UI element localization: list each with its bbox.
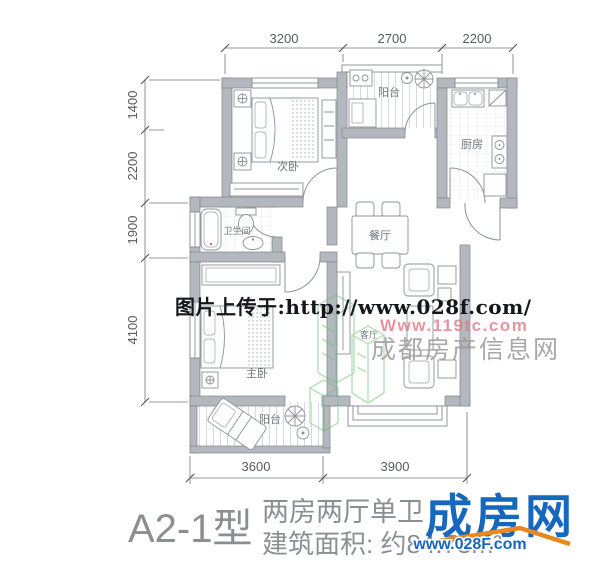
floor-plan-page: 3200 2700 2200 1400 2200 1900 4100 3600 … (0, 0, 600, 568)
bathroom-sink (243, 237, 263, 250)
chengfang-logo-url: www.028F.com (412, 536, 526, 553)
closet (202, 265, 280, 285)
plant (402, 73, 413, 84)
door-master-bedroom (285, 257, 320, 292)
layout-description: 两房两厅单卫 (262, 497, 424, 527)
wardrobe (322, 100, 336, 158)
stove (492, 136, 507, 168)
fan-plant (415, 70, 433, 88)
dim-left-1900: 1900 (125, 216, 140, 245)
plant (297, 427, 309, 439)
unit-type-label: A2-1型 (128, 507, 253, 551)
floor-plan-drawing: 3200 2700 2200 1400 2200 1900 4100 3600 … (0, 0, 600, 568)
window-kitchen (455, 78, 498, 88)
bay-window-living (348, 406, 447, 426)
dim-left-2200: 2200 (125, 152, 140, 181)
dresser (230, 183, 303, 196)
dim-bottom-3900: 3900 (381, 459, 410, 474)
nightstand (234, 153, 251, 170)
label-kitchen: 厨房 (461, 138, 483, 151)
balcony-cabinet (349, 99, 376, 127)
label-balcony-bottom: 阳台 (259, 412, 281, 426)
watermark-upload-text: 图片上传于:http://www.028f.com/ (175, 295, 532, 319)
label-bathroom: 卫生间 (223, 225, 250, 236)
dim-top-2700: 2700 (378, 31, 407, 46)
door-entry (465, 203, 500, 240)
washer (350, 70, 372, 86)
label-master-bedroom: 主卧 (246, 367, 268, 380)
dining-chair (356, 253, 374, 268)
nightstand (234, 90, 251, 107)
furniture-secondary-bedroom (230, 90, 336, 196)
footer: A2-1型 两房两厅单卫 建筑面积: 约84.73m² 成房网 www.028F… (128, 490, 575, 559)
label-balcony-top: 阳台 (378, 85, 400, 99)
fan-plant (285, 406, 305, 426)
dim-top-3200: 3200 (270, 31, 299, 46)
label-dining-room: 餐厅 (369, 228, 391, 242)
nightstand (202, 372, 218, 388)
door-secondary-bedroom (303, 168, 337, 202)
armchair (404, 264, 434, 296)
corner-counter (489, 90, 506, 106)
window-secondary-bedroom (252, 78, 318, 88)
dim-bottom-3600: 3600 (242, 459, 271, 474)
bathtub (201, 209, 221, 250)
dining-chair (382, 253, 400, 268)
dim-top-2200: 2200 (463, 31, 492, 46)
kitchen-counter (484, 174, 506, 196)
kitchen-sink (452, 90, 484, 107)
dim-left-4100: 4100 (125, 316, 140, 345)
dining-chair (382, 202, 400, 217)
window-bathroom (190, 212, 200, 247)
chengfang-logo: 成房网 www.028F.com (412, 490, 575, 553)
side-table (438, 266, 456, 284)
bed-secondary (252, 98, 318, 162)
watermark-site-name: 成都房产信息网 (371, 336, 560, 364)
dim-left-1400: 1400 (125, 91, 140, 120)
furniture-master-bedroom (201, 265, 280, 388)
label-secondary-bedroom: 次卧 (277, 159, 299, 173)
dining-chair (356, 202, 374, 217)
